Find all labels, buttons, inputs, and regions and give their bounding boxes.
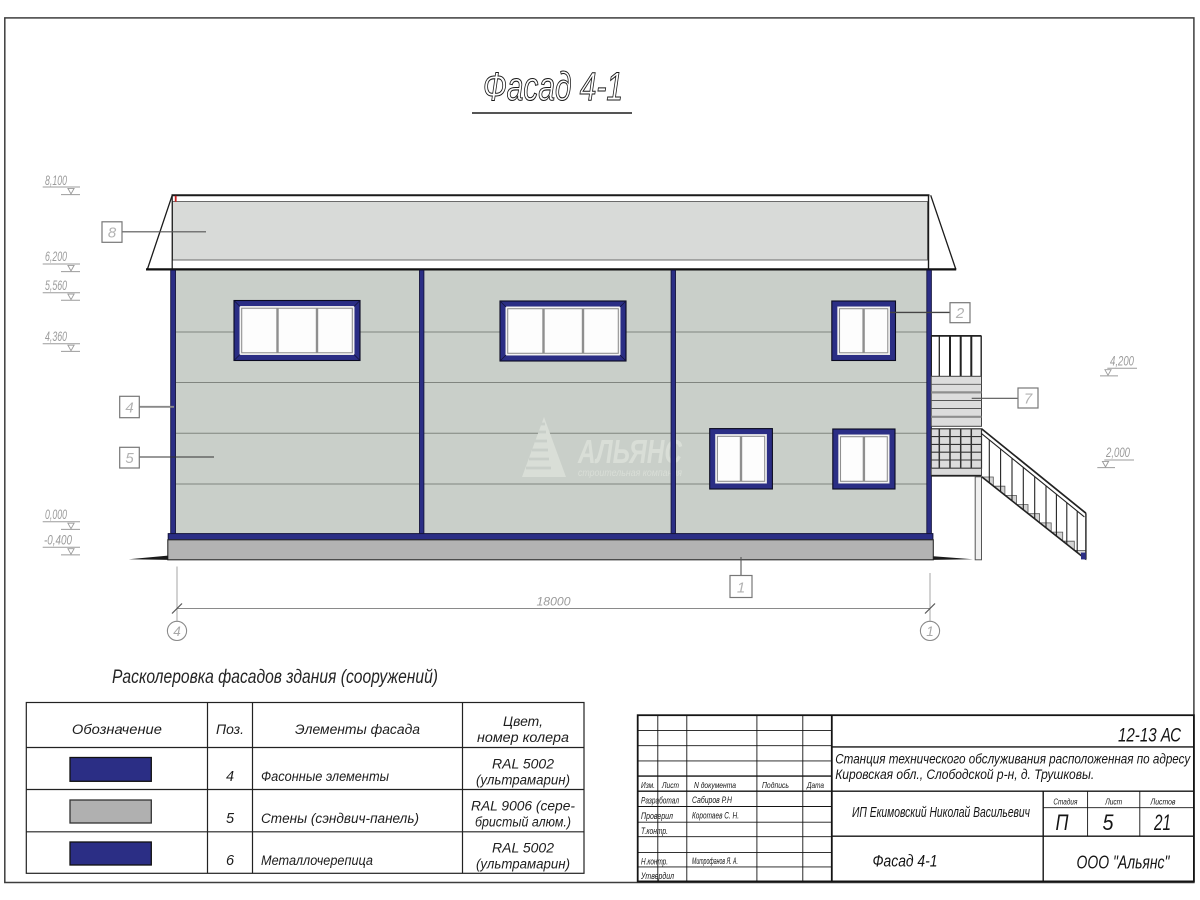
svg-text:1: 1: [737, 580, 745, 597]
svg-text:RAL 5002: RAL 5002: [492, 841, 554, 856]
svg-text:Расколеровка фасадов здания (с: Расколеровка фасадов здания (сооружений): [112, 666, 438, 688]
svg-text:4,360: 4,360: [45, 329, 67, 344]
svg-text:бристый алюм.): бристый алюм.): [475, 815, 571, 830]
svg-text:Фасад 4-1: Фасад 4-1: [483, 65, 623, 109]
svg-text:Листов: Листов: [1150, 797, 1176, 806]
svg-text:7: 7: [1024, 391, 1033, 408]
svg-text:2: 2: [955, 305, 965, 322]
svg-text:Проверил: Проверил: [641, 811, 674, 821]
svg-text:(ультрамарин): (ультрамарин): [476, 857, 570, 872]
svg-text:Сабиров Р.Н: Сабиров Р.Н: [692, 795, 732, 805]
svg-text:Стадия: Стадия: [1053, 797, 1078, 806]
svg-text:Лист: Лист: [1104, 797, 1122, 806]
svg-text:Цвет,: Цвет,: [503, 714, 543, 729]
svg-text:Лист: Лист: [661, 781, 679, 790]
svg-text:2,000: 2,000: [1105, 445, 1130, 460]
svg-text:Дата: Дата: [806, 781, 824, 790]
svg-text:N документа: N документа: [694, 781, 736, 790]
svg-text:12-13 АС: 12-13 АС: [1118, 726, 1181, 747]
svg-text:Кировская обл., Слободской р-н: Кировская обл., Слободской р-н, д. Трушк…: [835, 767, 1094, 782]
svg-text:8: 8: [108, 225, 117, 242]
svg-text:4,200: 4,200: [1110, 354, 1134, 369]
svg-text:ООО "Альянс": ООО "Альянс": [1077, 853, 1171, 873]
svg-text:П: П: [1056, 810, 1069, 835]
svg-text:ИП Екимовский Николай Васильев: ИП Екимовский Николай Васильевич: [852, 804, 1030, 821]
svg-text:Митрофанов Я. А.: Митрофанов Я. А.: [692, 856, 738, 866]
svg-text:(ультрамарин): (ультрамарин): [476, 773, 570, 788]
svg-text:АЛЬЯНС: АЛЬЯНС: [577, 433, 683, 470]
svg-text:Разработал: Разработал: [641, 796, 680, 806]
svg-text:6: 6: [226, 853, 235, 869]
svg-text:Коротаев С. Н.: Коротаев С. Н.: [692, 811, 739, 821]
svg-text:0,000: 0,000: [45, 507, 67, 522]
svg-text:Фасад 4-1: Фасад 4-1: [873, 852, 938, 871]
svg-text:Изм.: Изм.: [641, 781, 655, 790]
svg-text:Утвердил: Утвердил: [640, 871, 674, 881]
svg-text:5: 5: [125, 450, 134, 467]
svg-text:Т.контр.: Т.контр.: [641, 826, 668, 836]
svg-text:Н.контр.: Н.контр.: [641, 857, 668, 867]
svg-text:RAL 9006 (сере-: RAL 9006 (сере-: [471, 799, 576, 814]
svg-text:6,200: 6,200: [45, 249, 67, 264]
svg-text:5: 5: [226, 811, 235, 827]
svg-text:Элементы фасада: Элементы фасада: [295, 722, 420, 737]
svg-text:номер колера: номер колера: [477, 730, 570, 745]
svg-text:Стены (сэндвич-панель): Стены (сэндвич-панель): [261, 811, 419, 826]
svg-text:21: 21: [1153, 810, 1171, 835]
svg-text:Подпись: Подпись: [762, 781, 789, 790]
svg-text:4: 4: [226, 769, 234, 785]
svg-text:RAL 5002: RAL 5002: [492, 757, 554, 772]
svg-text:5: 5: [1103, 810, 1115, 835]
svg-text:1: 1: [926, 624, 934, 639]
svg-text:8,100: 8,100: [45, 173, 67, 188]
svg-text:строительная компания: строительная компания: [578, 468, 683, 479]
svg-text:Металлочерепица: Металлочерепица: [261, 853, 373, 868]
svg-text:Фасонные элементы: Фасонные элементы: [261, 769, 389, 784]
svg-text:4: 4: [173, 624, 181, 639]
svg-text:18000: 18000: [537, 597, 572, 609]
svg-text:-0,400: -0,400: [44, 533, 72, 548]
svg-text:Станция технического обслужива: Станция технического обслуживания распол…: [835, 752, 1191, 767]
svg-text:Обозначение: Обозначение: [72, 722, 162, 737]
svg-text:5,560: 5,560: [45, 278, 67, 293]
svg-text:Поз.: Поз.: [216, 722, 244, 737]
svg-text:4: 4: [125, 400, 133, 417]
